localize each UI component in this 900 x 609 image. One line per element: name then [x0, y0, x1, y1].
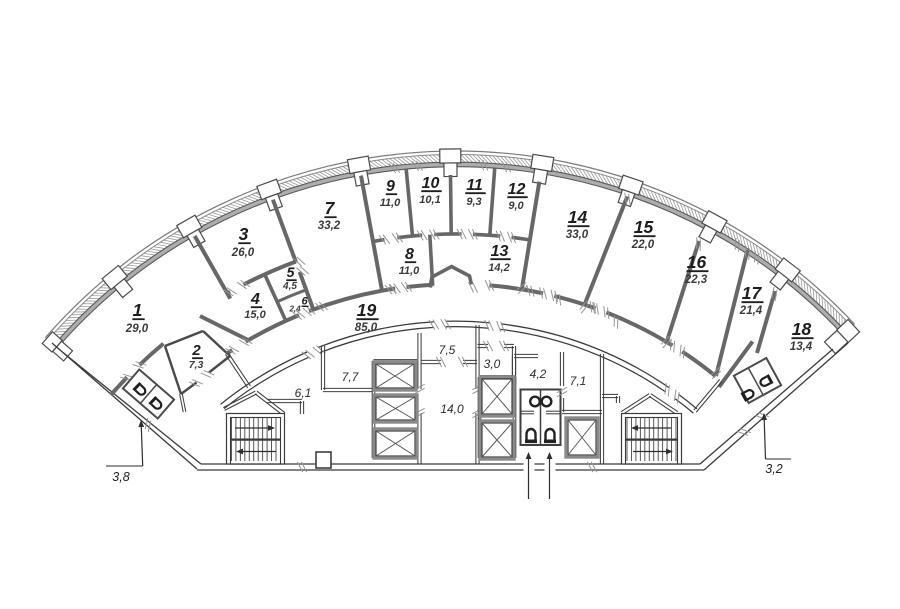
svg-text:29,0: 29,0	[125, 323, 149, 335]
svg-text:11: 11	[466, 177, 483, 194]
svg-text:21,4: 21,4	[739, 305, 763, 317]
svg-text:11,0: 11,0	[380, 197, 401, 209]
svg-text:16: 16	[687, 252, 707, 272]
svg-text:13,4: 13,4	[790, 341, 813, 353]
svg-text:3,8: 3,8	[112, 470, 129, 484]
svg-text:26,0: 26,0	[231, 247, 255, 259]
svg-text:14,0: 14,0	[440, 402, 464, 416]
svg-text:2: 2	[191, 342, 201, 359]
svg-text:3,2: 3,2	[765, 462, 782, 476]
svg-text:14,2: 14,2	[488, 262, 509, 274]
svg-text:22,3: 22,3	[684, 274, 708, 286]
svg-text:13: 13	[491, 243, 509, 260]
svg-text:33,2: 33,2	[318, 220, 341, 232]
svg-text:18: 18	[792, 319, 812, 339]
svg-text:8: 8	[405, 246, 414, 263]
svg-text:1: 1	[133, 300, 143, 320]
svg-text:15: 15	[634, 217, 654, 237]
svg-text:19: 19	[357, 300, 377, 320]
svg-text:5: 5	[287, 264, 295, 280]
svg-text:4,5: 4,5	[282, 281, 297, 292]
svg-text:17: 17	[742, 283, 763, 303]
svg-text:9,3: 9,3	[466, 196, 481, 208]
svg-text:15,0: 15,0	[244, 309, 266, 321]
svg-text:4,2: 4,2	[530, 367, 547, 381]
svg-text:3,0: 3,0	[484, 357, 501, 371]
svg-text:7,5: 7,5	[439, 343, 456, 357]
svg-text:4: 4	[250, 291, 260, 308]
svg-text:10: 10	[422, 175, 440, 192]
svg-text:7,3: 7,3	[189, 359, 204, 371]
svg-text:85,0: 85,0	[355, 322, 378, 334]
svg-text:9: 9	[386, 178, 395, 195]
svg-text:10,1: 10,1	[419, 194, 440, 206]
svg-text:12: 12	[508, 181, 526, 198]
svg-text:9,0: 9,0	[508, 200, 524, 212]
svg-text:7,7: 7,7	[342, 370, 360, 384]
svg-text:14: 14	[568, 207, 588, 227]
svg-text:7,1: 7,1	[570, 374, 587, 388]
svg-text:3: 3	[239, 224, 249, 244]
svg-text:22,0: 22,0	[631, 239, 655, 251]
svg-text:2,4: 2,4	[288, 305, 301, 314]
svg-text:7: 7	[325, 198, 336, 218]
svg-text:6,1: 6,1	[295, 386, 312, 400]
svg-text:11,0: 11,0	[399, 265, 420, 277]
svg-text:33,0: 33,0	[566, 229, 589, 241]
